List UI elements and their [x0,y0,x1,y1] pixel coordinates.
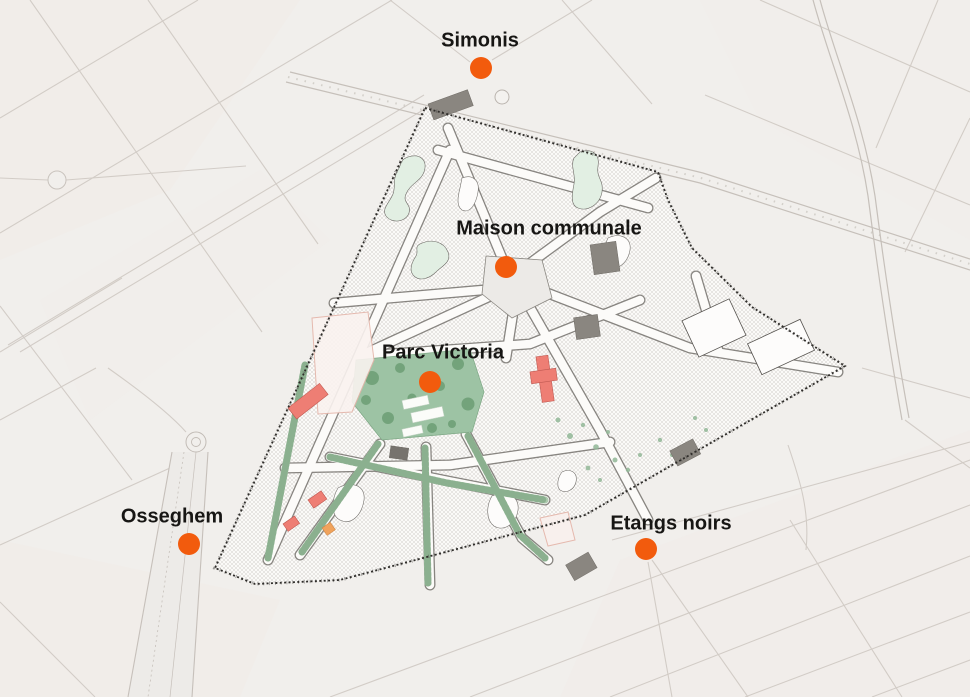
marker-dot-etangs-noirs[interactable] [635,538,657,560]
marker-dot-osseghem[interactable] [178,533,200,555]
marker-label-osseghem[interactable]: Osseghem [121,506,223,529]
marker-dot-parc-victoria[interactable] [419,371,441,393]
marker-dot-maison-communale[interactable] [495,256,517,278]
marker-dot-simonis[interactable] [470,57,492,79]
map-page: Simonis Maison communale Parc Victoria O… [0,0,970,697]
station-markers: Simonis Maison communale Parc Victoria O… [0,0,970,697]
map-marker-parc-victoria: Parc Victoria [0,0,970,697]
marker-label-maison-communale[interactable]: Maison communale [456,218,642,241]
marker-label-parc-victoria[interactable]: Parc Victoria [382,342,504,365]
marker-label-etangs-noirs[interactable]: Etangs noirs [610,513,731,536]
marker-label-simonis[interactable]: Simonis [441,30,519,53]
